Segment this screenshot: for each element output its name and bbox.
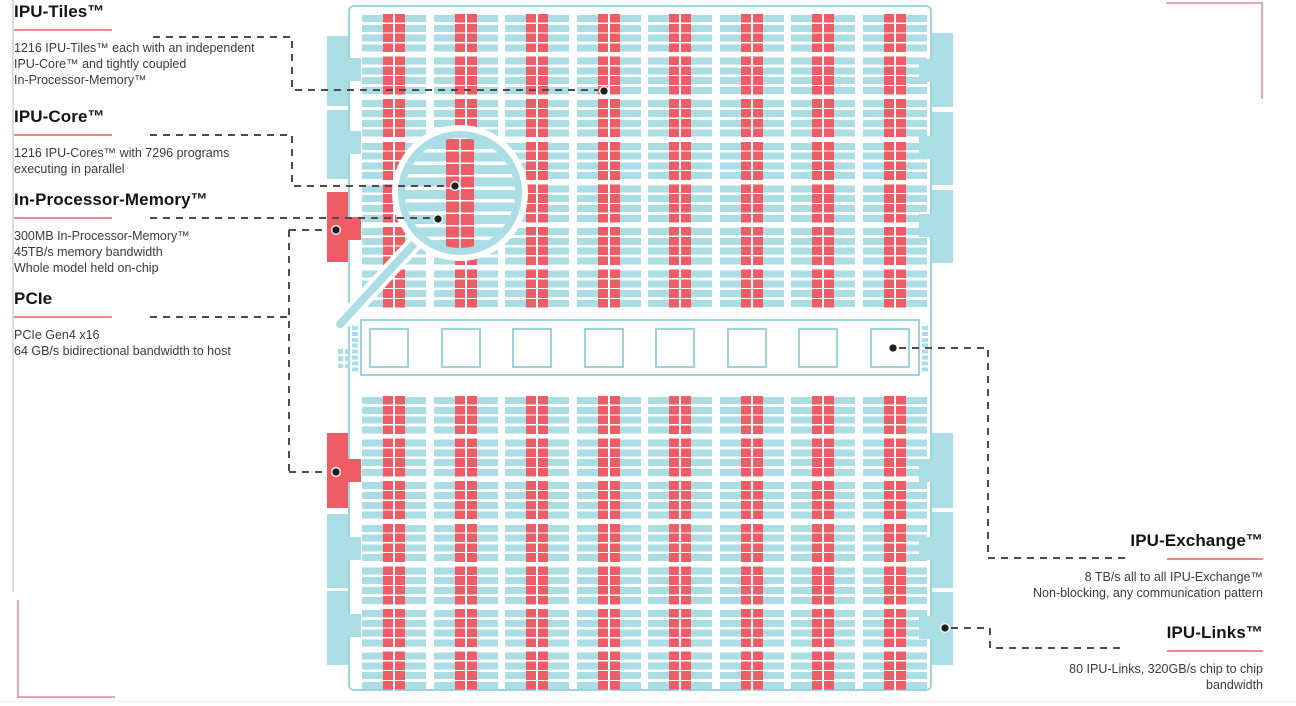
connector-blue-left: [327, 36, 348, 106]
connector-tab: [348, 459, 361, 482]
exchange-pad: [338, 356, 343, 361]
connector-tab: [919, 136, 932, 159]
tile-column: [577, 397, 641, 690]
connector-tab: [919, 616, 932, 639]
strip-divider: [751, 14, 753, 311]
ipu-chip-diagram: [0, 0, 1296, 706]
exchange-pad: [338, 349, 343, 354]
core-memory-strip: [884, 396, 906, 691]
tile-column: [362, 397, 426, 690]
strip-divider: [822, 396, 824, 691]
exchange-square: [655, 328, 695, 368]
strip-divider: [608, 396, 610, 691]
core-memory-strip: [598, 14, 620, 311]
core-memory-strip: [669, 14, 691, 311]
connector-red-left: [327, 433, 348, 508]
connector-tab: [348, 217, 361, 240]
tile-column: [720, 15, 784, 310]
strip-divider: [608, 14, 610, 311]
strip-divider: [393, 396, 395, 691]
exchange-square: [512, 328, 552, 368]
tile-column: [434, 397, 498, 690]
connector-blue-right: [932, 433, 953, 508]
connector-tab: [348, 614, 361, 637]
connector-blue-right: [932, 512, 953, 588]
strip-divider: [822, 14, 824, 311]
connector-red-left: [327, 192, 348, 262]
core-memory-strip: [812, 14, 834, 311]
magnified-core-column: [461, 139, 474, 251]
core-memory-strip: [526, 14, 548, 311]
connector-blue-right: [932, 592, 953, 665]
magnifier-lens: [398, 131, 522, 255]
connector-tab: [919, 214, 932, 237]
magnified-tile-bars: [405, 140, 515, 250]
tile-column: [577, 15, 641, 310]
core-memory-strip: [741, 14, 763, 311]
strip-divider: [679, 396, 681, 691]
tile-column: [863, 397, 927, 690]
strip-divider: [679, 14, 681, 311]
connector-blue-right: [932, 33, 953, 107]
connector-tab: [919, 59, 932, 82]
connector-tab: [919, 537, 932, 560]
core-memory-strip: [526, 396, 548, 691]
tile-column: [791, 15, 855, 310]
exchange-square: [870, 328, 910, 368]
strip-divider: [536, 396, 538, 691]
core-memory-strip: [455, 396, 477, 691]
exchange-square: [369, 328, 409, 368]
exchange-square: [727, 328, 767, 368]
strip-divider: [751, 396, 753, 691]
exchange-pad: [338, 364, 343, 369]
strip-divider: [465, 396, 467, 691]
connector-blue-left: [327, 514, 348, 588]
exchange-square: [441, 328, 481, 368]
core-memory-strip: [812, 396, 834, 691]
strip-divider: [536, 14, 538, 311]
exchange-square: [584, 328, 624, 368]
exchange-pad: [345, 356, 350, 361]
connector-tab: [919, 459, 932, 482]
exchange-square: [798, 328, 838, 368]
tile-column: [648, 397, 712, 690]
exchange-pad: [345, 364, 350, 369]
core-memory-strip: [669, 396, 691, 691]
exchange-teeth-right: [922, 326, 928, 372]
tile-column: [720, 397, 784, 690]
core-memory-strip: [383, 396, 405, 691]
tile-column: [648, 15, 712, 310]
ipu-architecture-diagram: IPU-Tiles™ 1216 IPU-Tiles™ each with an …: [0, 0, 1296, 706]
magnified-core-column: [446, 139, 459, 251]
exchange-pad: [345, 349, 350, 354]
core-memory-strip: [598, 396, 620, 691]
tile-column: [863, 15, 927, 310]
connector-tab: [348, 58, 361, 81]
connector-blue-right: [932, 112, 953, 185]
core-memory-strip: [741, 396, 763, 691]
strip-divider: [894, 14, 896, 311]
connector-tab: [348, 537, 361, 560]
connector-tab: [348, 131, 361, 154]
connector-blue-right: [932, 190, 953, 263]
tile-column: [505, 397, 569, 690]
strip-divider: [894, 396, 896, 691]
connector-blue-left: [327, 110, 348, 179]
exchange-teeth-left: [352, 326, 358, 372]
connector-blue-left: [327, 591, 348, 665]
tile-column: [791, 397, 855, 690]
core-memory-strip: [884, 14, 906, 311]
